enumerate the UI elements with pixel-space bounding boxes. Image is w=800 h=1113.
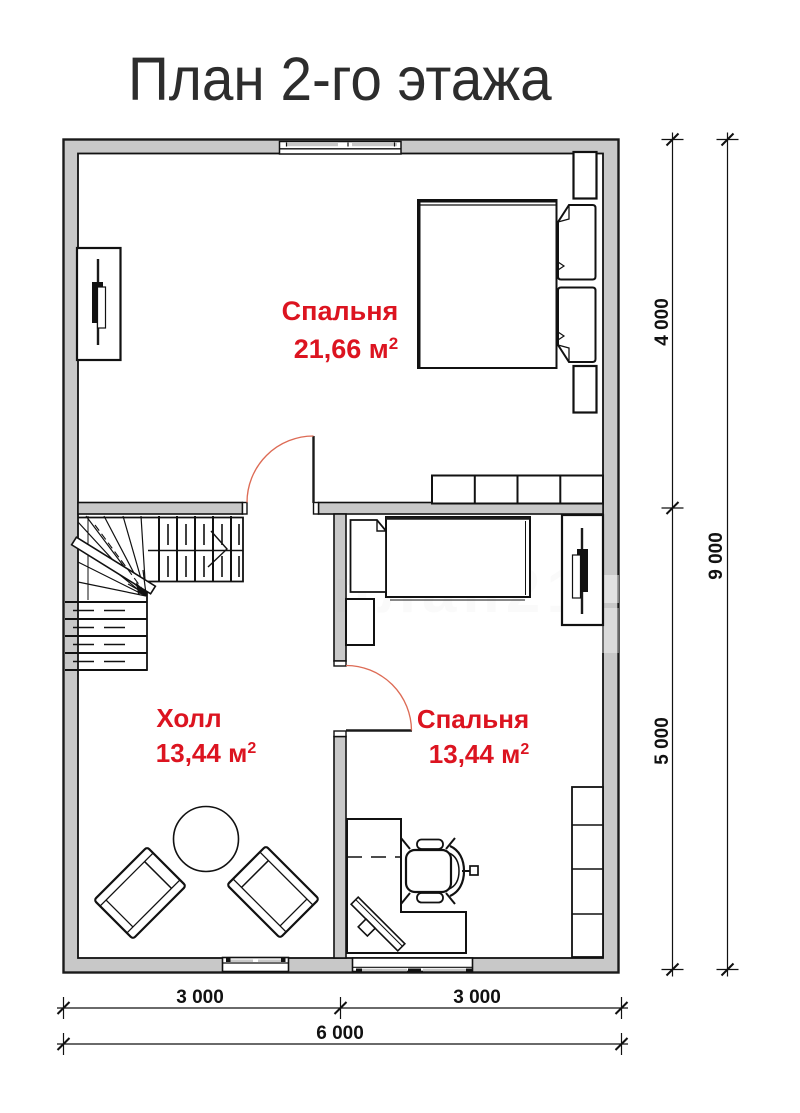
svg-text:13,44 м2: 13,44 м2 xyxy=(156,738,257,768)
svg-text:4 000: 4 000 xyxy=(652,298,673,346)
svg-text:3 000: 3 000 xyxy=(453,987,501,1008)
svg-text:Спальня: Спальня xyxy=(282,296,399,326)
svg-text:Холл: Холл xyxy=(156,703,221,733)
svg-text:9 000: 9 000 xyxy=(706,532,727,580)
svg-text:21,66 м2: 21,66 м2 xyxy=(294,334,399,364)
svg-text:3 000: 3 000 xyxy=(176,987,224,1008)
svg-text:13,44 м2: 13,44 м2 xyxy=(429,739,530,769)
svg-text:Спальня: Спальня xyxy=(417,704,529,734)
svg-text:5 000: 5 000 xyxy=(652,717,673,765)
svg-text:План 2-го этажа: План 2-го этажа xyxy=(128,46,552,113)
svg-text:6 000: 6 000 xyxy=(316,1023,364,1044)
